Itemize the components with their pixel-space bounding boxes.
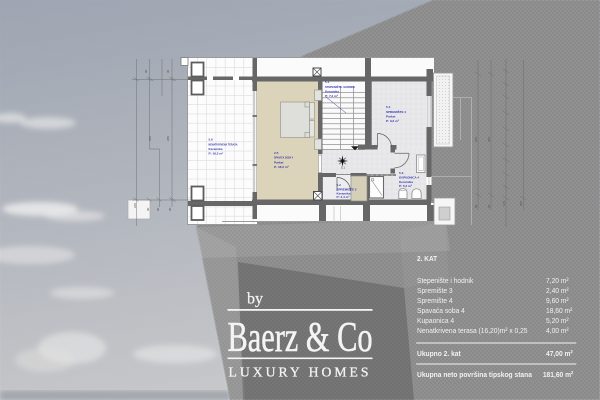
svg-text:5.2: 5.2 bbox=[337, 183, 342, 187]
svg-text:5.6: 5.6 bbox=[209, 138, 214, 142]
svg-text:4,00 m²: 4,00 m² bbox=[546, 327, 569, 335]
svg-text:P: 7,2 m²: P: 7,2 m² bbox=[325, 94, 338, 98]
svg-text:260: 260 bbox=[148, 136, 152, 141]
svg-text:280: 280 bbox=[487, 137, 491, 142]
svg-text:5.3: 5.3 bbox=[399, 171, 404, 175]
svg-text:90: 90 bbox=[144, 69, 148, 73]
svg-text:2. KAT: 2. KAT bbox=[417, 256, 438, 263]
svg-text:P: 5,2 m²: P: 5,2 m² bbox=[399, 184, 412, 188]
svg-text:NENATKRIVENA TERASA: NENATKRIVENA TERASA bbox=[209, 143, 239, 147]
svg-text:KUPAONICA 4: KUPAONICA 4 bbox=[399, 176, 419, 180]
svg-text:Spavaća soba 4: Spavaća soba 4 bbox=[417, 307, 465, 315]
svg-text:Keramika: Keramika bbox=[209, 147, 223, 151]
svg-text:260: 260 bbox=[133, 203, 137, 208]
svg-text:181,60 m²: 181,60 m² bbox=[543, 371, 574, 379]
svg-text:260: 260 bbox=[474, 137, 478, 142]
svg-text:Spremište 4: Spremište 4 bbox=[417, 297, 453, 305]
svg-text:135: 135 bbox=[502, 201, 506, 206]
svg-text:Ukupno 2. kat: Ukupno 2. kat bbox=[417, 350, 461, 358]
svg-text:SPREMIŠTE 4: SPREMIŠTE 4 bbox=[386, 109, 406, 114]
svg-text:47,00 m²: 47,00 m² bbox=[546, 350, 573, 358]
svg-text:Parket: Parket bbox=[386, 115, 395, 119]
svg-text:Stepenište i hodnik: Stepenište i hodnik bbox=[417, 277, 474, 285]
svg-text:90: 90 bbox=[146, 207, 150, 211]
svg-text:805: 805 bbox=[519, 201, 523, 206]
svg-text:7,20 m²: 7,20 m² bbox=[546, 277, 569, 285]
svg-text:Nenatkrivena terasa (16,20)m²: Nenatkrivena terasa (16,20)m² x 0,25 bbox=[417, 327, 528, 335]
svg-text:P: 18,6 m²: P: 18,6 m² bbox=[274, 165, 289, 169]
svg-text:Ukupna neto površina tipskog s: Ukupna neto površina tipskog stana bbox=[417, 371, 533, 379]
svg-text:5.1: 5.1 bbox=[325, 80, 330, 84]
svg-text:9,60 m²: 9,60 m² bbox=[546, 297, 569, 305]
svg-text:P: 9,6 m²: P: 9,6 m² bbox=[386, 119, 399, 123]
svg-text:90: 90 bbox=[156, 207, 160, 211]
svg-text:P: 16,2 m²: P: 16,2 m² bbox=[209, 152, 224, 156]
svg-text:280: 280 bbox=[166, 136, 170, 141]
svg-text:Keramika: Keramika bbox=[325, 90, 339, 94]
svg-text:by: by bbox=[247, 291, 263, 308]
svg-text:2.5: 2.5 bbox=[274, 151, 279, 155]
svg-text:Baerz & Co: Baerz & Co bbox=[228, 314, 373, 361]
svg-text:18,60 m²: 18,60 m² bbox=[546, 307, 573, 315]
svg-text:90: 90 bbox=[487, 204, 491, 208]
svg-text:5.1: 5.1 bbox=[341, 166, 345, 170]
svg-text:Parket: Parket bbox=[274, 161, 283, 165]
svg-text:Spremište 3: Spremište 3 bbox=[417, 287, 453, 295]
svg-text:5,20 m²: 5,20 m² bbox=[546, 317, 569, 325]
svg-text:LUXURY HOMES: LUXURY HOMES bbox=[229, 365, 372, 380]
svg-text:P: 2,4 m²: P: 2,4 m² bbox=[337, 195, 350, 199]
svg-text:90: 90 bbox=[166, 69, 170, 73]
svg-text:90: 90 bbox=[168, 207, 172, 211]
svg-text:90: 90 bbox=[474, 204, 478, 208]
svg-text:2,40 m²: 2,40 m² bbox=[546, 287, 569, 295]
svg-text:STEPENIŠTE I HODNIK: STEPENIŠTE I HODNIK bbox=[325, 84, 356, 89]
svg-text:SPAVAĆA SOBA 4: SPAVAĆA SOBA 4 bbox=[274, 155, 293, 160]
svg-text:Kupaonica 4: Kupaonica 4 bbox=[417, 317, 454, 325]
svg-text:5.4: 5.4 bbox=[386, 105, 391, 109]
